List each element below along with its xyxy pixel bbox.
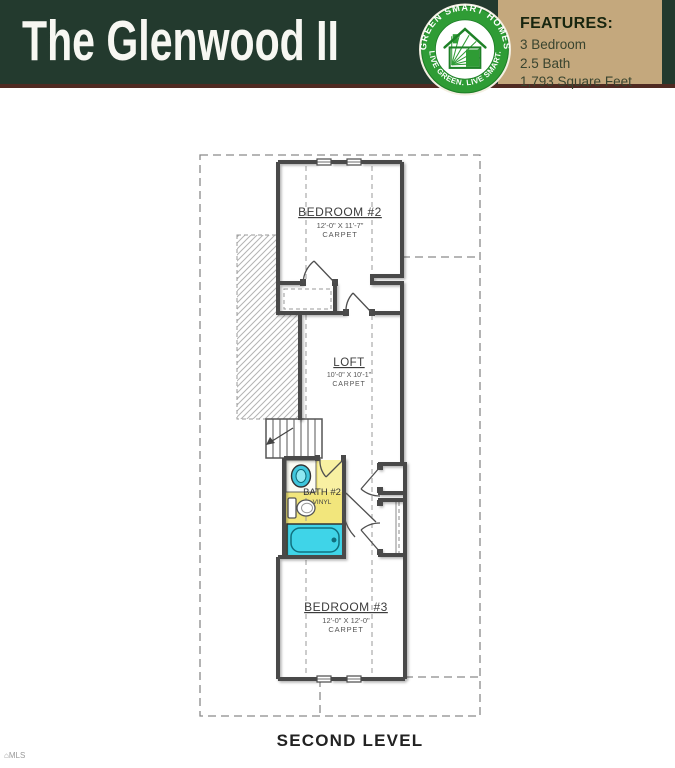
mls-watermark: ⌂MLS <box>4 751 25 760</box>
loft-floor: CARPET <box>332 381 365 388</box>
feature-sqft: 1,793 Square Feet <box>520 73 632 92</box>
loft-dims: 10'-0" X 10'-1" <box>327 372 372 379</box>
feature-bedrooms: 3 Bedroom <box>520 36 632 55</box>
features-list: FEATURES: 3 Bedroom 2.5 Bath 1,793 Squar… <box>520 15 632 92</box>
bedroom3-dims: 12'-0" X 12'-0" <box>322 616 370 625</box>
features-heading: FEATURES: <box>520 15 632 33</box>
loft-label: LOFT <box>333 357 364 369</box>
bedroom2-floor: CARPET <box>322 230 357 239</box>
toilet-tank <box>288 498 296 518</box>
floorplan-drawing: BEDROOM #2 12'-0" X 11'-7" CARPET LOFT 1… <box>0 0 675 768</box>
feature-baths: 2.5 Bath <box>520 55 632 74</box>
staircase <box>266 419 322 458</box>
level-label: SECOND LEVEL <box>277 731 424 750</box>
bedroom2-dims: 12'-0" X 11'-7" <box>317 221 364 230</box>
bath2-label: BATH #2 <box>303 487 341 498</box>
bedroom3-label: BEDROOM #3 <box>304 600 388 614</box>
bedroom2-label: BEDROOM #2 <box>298 205 382 219</box>
bedroom3-floor: CARPET <box>328 625 363 634</box>
bath2-floor: VINYL <box>313 499 332 506</box>
green-smart-homes-logo: GREEN SMART HOMES LIVE GREEN. LIVE SMART… <box>418 2 512 97</box>
